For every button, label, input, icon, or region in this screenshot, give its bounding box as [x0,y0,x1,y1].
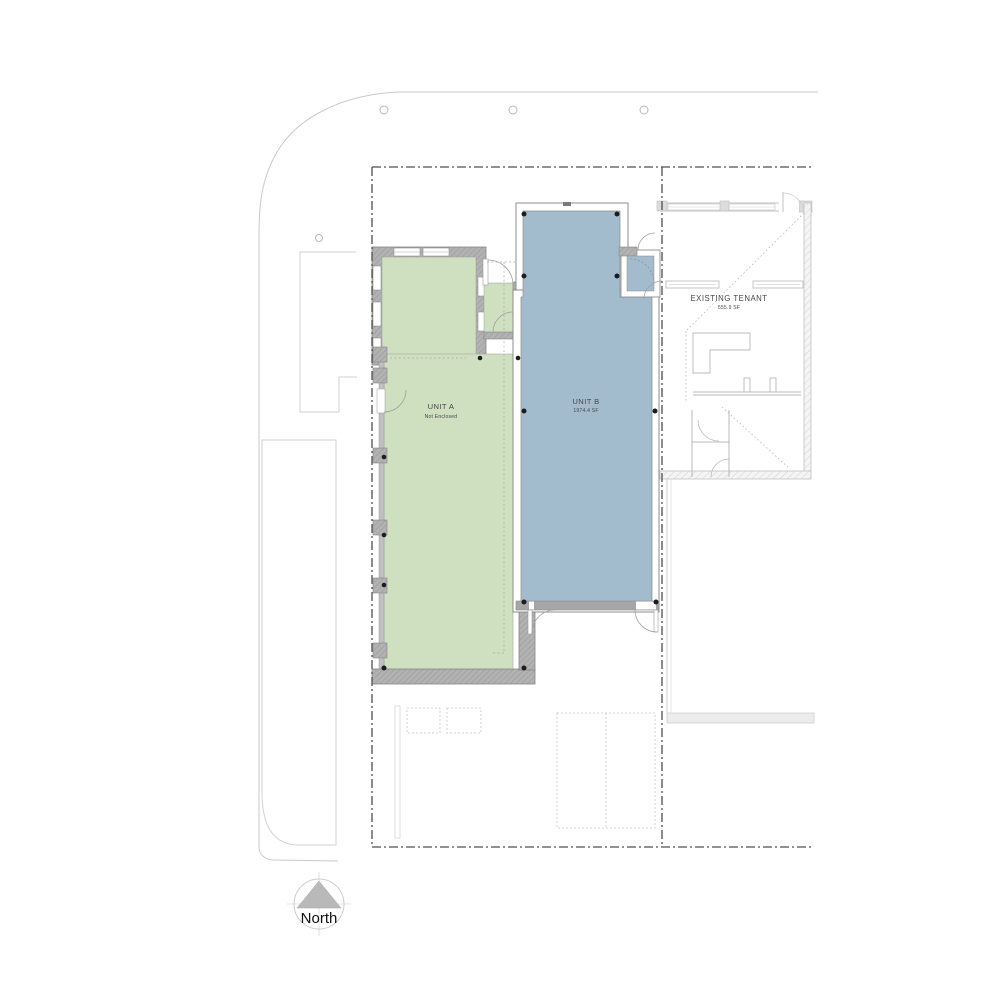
column-dot [522,409,527,414]
sidewalk-band [667,713,814,723]
tenant-wall-bottom [660,471,811,479]
yard-dashed-pad [447,708,481,733]
tenant-fixture [770,378,776,392]
north-arrow: North [287,872,351,936]
site-marker-circle [509,106,517,114]
tenant-plumbing-wall [693,378,801,395]
window [373,302,381,326]
column-dot [615,274,620,279]
column-dot [382,583,387,588]
yard-edge-strip [395,706,400,838]
column-dot [615,212,620,217]
vestibule-door-arc [638,233,655,250]
site-marker-circle [316,235,323,242]
unit-a-entry-door-leaf [483,259,488,285]
south-yard [395,706,655,838]
unit-a-bottom-wall [372,669,535,684]
unit-b-south-door-leaf [654,610,658,632]
sidewalk [667,479,814,723]
tenant-entry-door-gap [779,202,799,212]
unit-a-title: UNIT A [428,402,455,411]
pilaster [373,643,387,658]
site-marker-circle [380,106,388,114]
floor-plan-page: EXISTING TENANT 555.9 SF [0,0,1000,1000]
unit-b-grid-tick [563,202,571,206]
pilaster [373,347,387,362]
column-dot [478,356,483,361]
column-dot [382,533,387,538]
tenant-wall-mullion [720,201,729,211]
unit-b-south-door-gap [636,602,656,610]
unit-a-side-door-gap [377,389,385,413]
north-arrow-label: North [301,910,338,927]
column-dot [382,455,387,460]
unit-a-entry-door-arc [488,260,513,285]
site-plan-drawing: EXISTING TENANT 555.9 SF [0,0,1000,1000]
restroom-door-arc [698,420,719,441]
north-arrow-triangle [297,881,341,908]
pilaster [373,368,387,383]
tenant-fixture [744,378,750,392]
unit-b: UNIT B 1974.4 SF [513,202,662,634]
pilaster [373,520,387,535]
window [373,266,381,290]
column-dot [522,274,527,279]
unit-b-title: UNIT B [572,397,599,406]
unit-a-entry-floor [484,283,513,333]
column-dot [522,666,527,671]
column-dot [653,409,658,414]
column-dot [382,666,387,671]
tenant-counter [693,333,750,373]
column-dot [516,356,521,361]
yard-dashed-pad [407,708,440,733]
unit-a-east-wall [519,612,535,670]
site-outline-lower-left [262,440,336,845]
unit-a: UNIT A Not Enclosed [372,247,535,684]
vestibule-north-wall [619,247,637,256]
existing-tenant-area: EXISTING TENANT 555.9 SF [657,192,812,479]
unit-a-subtitle: Not Enclosed [425,414,458,420]
tenant-restrooms [692,410,729,477]
column-dot [522,212,527,217]
unit-b-south-door-arc [532,610,555,633]
existing-tenant-area-label: 555.9 SF [718,305,740,311]
unit-b-south-door-gap [529,602,534,610]
site-marker-circle [640,106,648,114]
site-outline-upper-left [300,252,357,412]
tenant-wall-right [804,203,811,479]
unit-b-south-door-leaf [528,610,532,634]
column-dot [654,600,659,605]
unit-b-subtitle: 1974.4 SF [573,408,598,414]
column-dot [522,600,527,605]
unit-a-room-floor [382,257,476,355]
existing-tenant-title: EXISTING TENANT [690,294,767,303]
tenant-interior-partitions [666,281,803,288]
